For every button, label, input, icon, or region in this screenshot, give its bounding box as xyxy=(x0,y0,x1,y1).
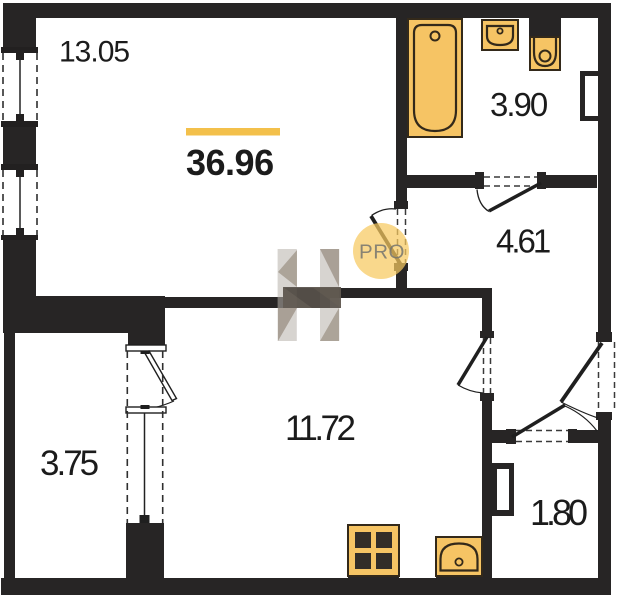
svg-text:13.05: 13.05 xyxy=(59,36,129,69)
svg-text:36.96: 36.96 xyxy=(186,142,274,183)
svg-text:PRO: PRO xyxy=(359,241,405,264)
svg-text:11.72: 11.72 xyxy=(285,409,355,448)
svg-text:3.90: 3.90 xyxy=(490,86,548,123)
svg-text:4.61: 4.61 xyxy=(496,223,550,260)
svg-text:3.75: 3.75 xyxy=(40,444,98,483)
svg-text:1.80: 1.80 xyxy=(530,492,587,533)
